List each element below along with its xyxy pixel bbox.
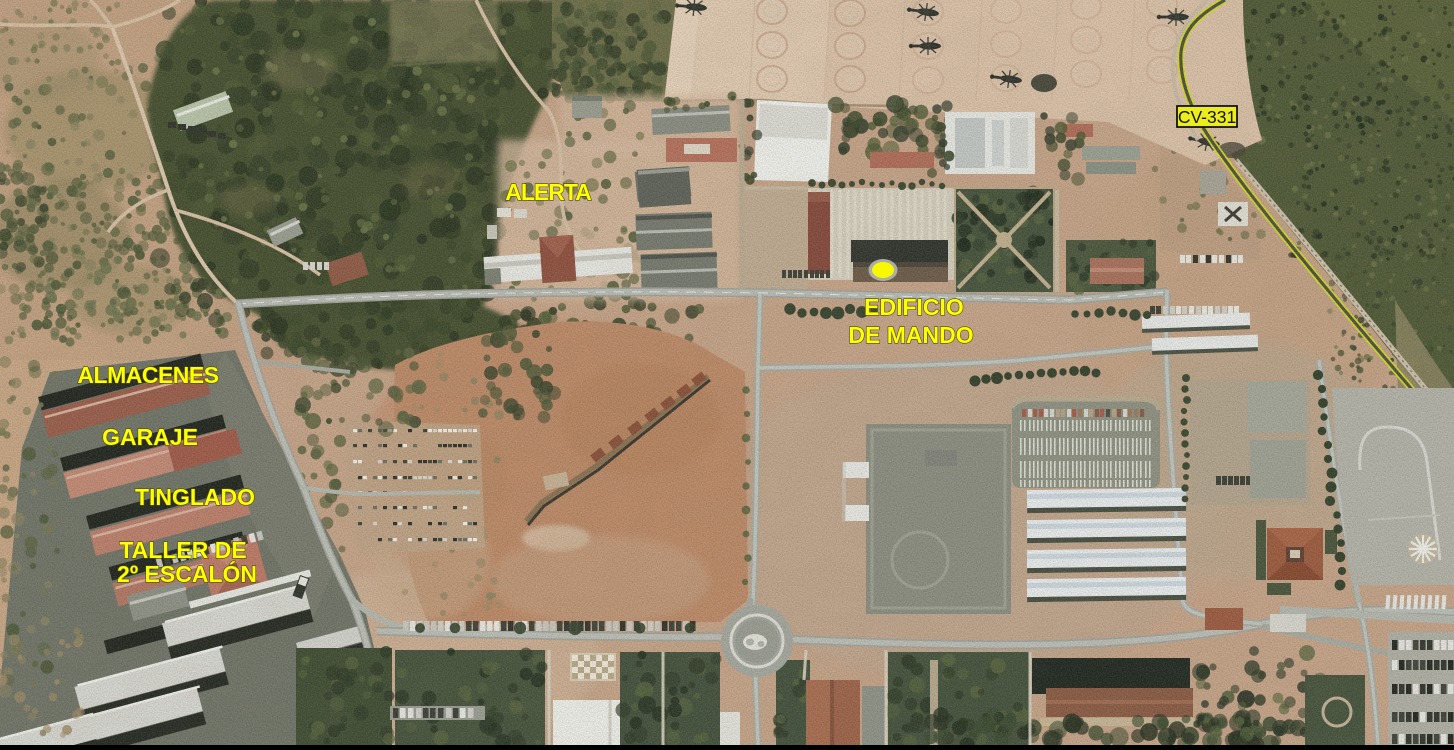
svg-text:CV-331: CV-331 [1178,107,1236,127]
svg-text:2º ESCALÓN: 2º ESCALÓN [117,560,257,587]
svg-text:EDIFICIO: EDIFICIO [864,294,964,320]
svg-text:ALMACENES: ALMACENES [77,362,218,388]
svg-text:ALERTA: ALERTA [505,179,591,205]
svg-text:TINGLADO: TINGLADO [135,484,255,510]
svg-text:TALLER DE: TALLER DE [119,537,246,563]
svg-text:DE MANDO: DE MANDO [848,322,973,348]
svg-text:GARAJE: GARAJE [102,424,198,450]
